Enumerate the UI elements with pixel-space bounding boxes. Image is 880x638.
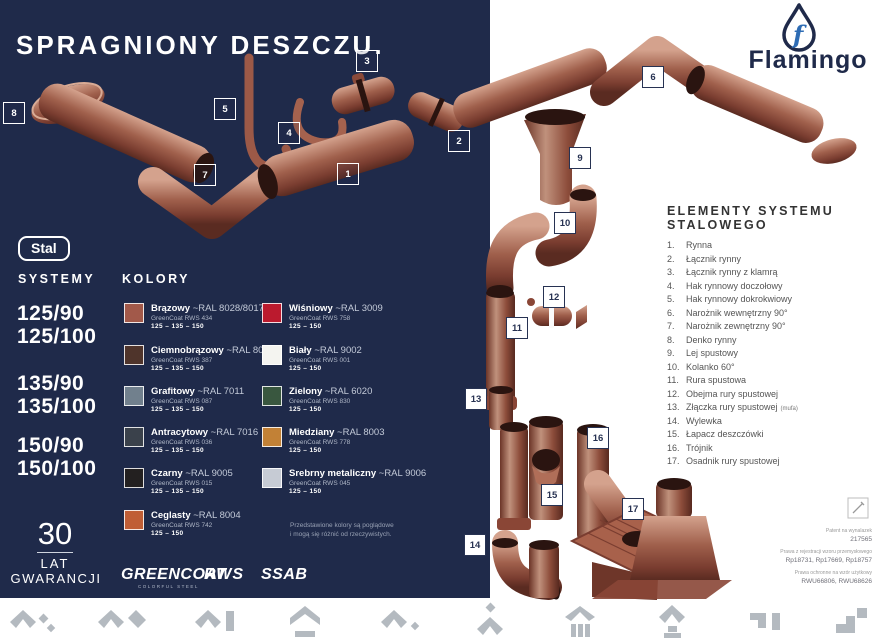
warranty-gwarancji-label: GWARANCJI: [10, 571, 102, 586]
part-kolanko-left-illustration: [487, 226, 536, 297]
element-list-item: 11.Rura spustowa: [667, 375, 877, 389]
part-badge-1: 1: [337, 163, 359, 185]
downspout-person-icon: [477, 603, 503, 635]
elements-heading: ELEMENTY SYSTEMU STALOWEGO: [667, 204, 880, 232]
part-zlaczka-mufa-illustration: [489, 386, 513, 430]
part-rura-bottom-illustration: [529, 540, 559, 598]
elements-list: 1.Rynna 2.Łącznik rynny 3.Łącznik rynny …: [667, 240, 877, 470]
eave-bar-icon: [290, 606, 320, 637]
page-title: SPRAGNIONY DESZCZU.: [16, 30, 385, 61]
part-badge-16: 16: [587, 427, 609, 449]
greencoat-logo-subtitle: COLORFUL STEEL: [138, 584, 199, 589]
colors-heading: KOLORY: [122, 272, 190, 286]
color-item-czarny: Czarny ~RAL 9005 GreenCoat RWS 015 125 –…: [124, 468, 233, 496]
element-list-item: 3.Łącznik rynny z klamrą: [667, 267, 877, 281]
element-list-item: 7.Narożnik zewnętrzny 90°: [667, 321, 877, 335]
part-denko-right-illustration: [809, 134, 859, 168]
part-badge-12: 12: [543, 286, 565, 308]
color-item-bialy: Biały ~RAL 9002 GreenCoat RWS 001 125 – …: [262, 345, 362, 373]
brochure-page: 1 2 3 4 5 6 7 8 9 10 11 12 13 14 15 16 1…: [0, 0, 880, 638]
color-swatch: [124, 303, 144, 323]
gutter-angle-icon: [98, 610, 146, 628]
color-swatch: [124, 386, 144, 406]
corner-elements-icon: [10, 610, 55, 632]
part-rura-dolna-illustration: [497, 422, 531, 530]
color-swatch: [262, 468, 282, 488]
part-badge-3: 3: [356, 50, 378, 72]
part-badge-9: 9: [569, 147, 591, 169]
step-profile-icon: [836, 608, 867, 633]
material-badge: Stal: [18, 236, 70, 261]
color-item-srebrny: Srebrny metaliczny ~RAL 9006 GreenCoat R…: [262, 468, 426, 496]
element-list-item: 10.Kolanko 60°: [667, 362, 877, 376]
element-list-item: 4.Hak rynnowy doczołowy: [667, 281, 877, 295]
system-sizes-group-150: 150/90 150/100: [17, 434, 96, 480]
color-item-grafitowy: Grafitowy ~RAL 7011 GreenCoat RWS 087 12…: [124, 386, 244, 414]
legal-notes: Patent na wynalazek 217565 Prawa z rejes…: [690, 528, 872, 591]
color-swatch: [262, 427, 282, 447]
element-list-item: 8.Denko rynny: [667, 335, 877, 349]
part-badge-6: 6: [642, 66, 664, 88]
part-badge-8: 8: [3, 102, 25, 124]
color-swatch: [124, 510, 144, 530]
part-badge-4: 4: [278, 122, 300, 144]
warranty-lat-label: LAT: [35, 556, 75, 571]
patent-icon: [847, 497, 869, 519]
rws-logo: RWS: [204, 566, 244, 584]
color-swatch: [262, 386, 282, 406]
color-item-ciemnobrazowy: Ciemnobrązowy ~RAL 8019 GreenCoat RWS 38…: [124, 345, 274, 373]
color-swatch: [124, 468, 144, 488]
part-osadnik-grate-illustration: [572, 508, 701, 600]
gutter-bracket-icon: [195, 610, 234, 631]
element-list-item: 17.Osadnik rury spustowej: [667, 456, 877, 470]
gutter-dot-icon: [381, 610, 419, 630]
color-item-zielony: Zielony ~RAL 6020 GreenCoat RWS 830 125 …: [262, 386, 372, 414]
element-list-item: 14.Wylewka: [667, 416, 877, 430]
part-badge-5: 5: [214, 98, 236, 120]
system-sizes-group-135: 135/90 135/100: [17, 372, 96, 418]
navy-background-panel: [0, 0, 490, 598]
color-disclaimer: Przedstawione kolory są poglądowe i mogą…: [290, 521, 394, 539]
part-badge-17: 17: [622, 498, 644, 520]
color-swatch: [262, 345, 282, 365]
part-badge-11: 11: [506, 317, 528, 339]
roof-chimney-icon: [659, 605, 685, 638]
color-item-antracytowy: Antracytowy ~RAL 7016 GreenCoat RWS 036 …: [124, 427, 258, 455]
color-item-brazowy: Brązowy ~RAL 8028/8017 GreenCoat RWS 434…: [124, 303, 264, 331]
color-item-ceglasty: Ceglasty ~RAL 8004 GreenCoat RWS 742 125…: [124, 510, 241, 538]
footer-pictogram-strip: [0, 600, 880, 638]
part-badge-13: 13: [465, 388, 487, 410]
part-badge-14: 14: [464, 534, 486, 556]
element-list-item: 16.Trójnik: [667, 443, 877, 457]
corner-profile-icon: [750, 613, 780, 630]
systems-heading: SYSTEMY: [18, 272, 95, 286]
part-badge-15: 15: [541, 484, 563, 506]
system-sizes-group-125: 125/90 125/100: [17, 302, 96, 348]
part-badge-7: 7: [194, 164, 216, 186]
warranty-years: 30: [35, 516, 75, 552]
color-swatch: [262, 303, 282, 323]
element-list-item: 9.Lej spustowy: [667, 348, 877, 362]
element-list-item: 5.Hak rynnowy dokrokwiowy: [667, 294, 877, 308]
color-item-miedziany: Miedziany ~RAL 8003 GreenCoat RWS 778 12…: [262, 427, 385, 455]
flamingo-wordmark: Flamingo: [734, 46, 880, 75]
part-badge-2: 2: [448, 130, 470, 152]
element-list-item: 1.Rynna: [667, 240, 877, 254]
element-list-item: 6.Narożnik wewnętrzny 90°: [667, 308, 877, 322]
ssab-logo: SSAB: [261, 566, 307, 584]
color-item-wisniowy: Wiśniowy ~RAL 3009 GreenCoat RWS 758 125…: [262, 303, 383, 331]
house-columns-icon: [565, 606, 595, 637]
color-swatch: [124, 345, 144, 365]
flamingo-drop-icon: f: [779, 2, 819, 52]
color-swatch: [124, 427, 144, 447]
part-wylewka-illustration: [492, 538, 563, 601]
element-list-item: 15.Łapacz deszczówki: [667, 429, 877, 443]
element-list-item: 2.Łącznik rynny: [667, 254, 877, 268]
part-badge-10: 10: [554, 212, 576, 234]
element-list-item: 12.Obejma rury spustowej: [667, 389, 877, 403]
warranty-divider: [37, 552, 73, 553]
element-list-item: 13.Złączka rury spustowej(mufa): [667, 402, 877, 416]
